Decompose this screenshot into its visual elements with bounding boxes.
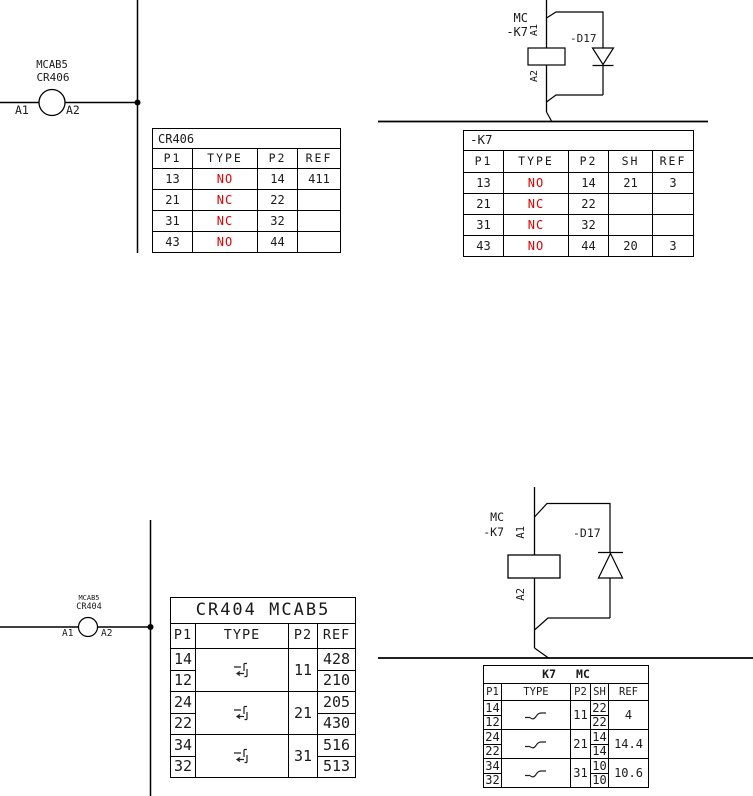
diode-tag: -D17 bbox=[570, 33, 597, 44]
cell-p2: 11 bbox=[289, 649, 318, 692]
diode-triangle-icon bbox=[599, 554, 623, 579]
table-row: 43 NO 44 20 3 bbox=[464, 236, 694, 257]
coil-tag-line2: -K7 bbox=[477, 527, 504, 539]
cell-p2: 21 bbox=[289, 692, 318, 735]
table-row: 13 NO 14 21 3 bbox=[464, 173, 694, 194]
col-header-p1: P1 bbox=[484, 684, 502, 701]
cell-sh: 14 bbox=[591, 730, 609, 745]
cell-type: NO bbox=[193, 232, 258, 253]
cell-type: NO bbox=[504, 173, 569, 194]
cell-sh bbox=[609, 215, 653, 236]
cell-ref: 513 bbox=[318, 756, 356, 778]
contact-xref-table-k7-top[interactable]: -K7 P1 TYPE P2 SH REF 13 NO 14 21 3 21 N… bbox=[463, 130, 694, 257]
cell-ref bbox=[298, 211, 341, 232]
terminal-label-a1: A1 bbox=[530, 24, 540, 36]
cell-p1: 32 bbox=[484, 773, 502, 788]
col-header-ref: REF bbox=[298, 149, 341, 169]
col-header-p2: P2 bbox=[571, 684, 591, 701]
coil-tag-line1: MCAB5 bbox=[30, 60, 74, 71]
col-header-p2: P2 bbox=[258, 149, 298, 169]
contact-xref-table-k7-bottom[interactable]: K7MC P1 TYPE P2 SH REF 14 11 22 4 12 22 … bbox=[483, 665, 649, 788]
cell-p2: 31 bbox=[289, 735, 318, 778]
col-header-ref: REF bbox=[653, 151, 694, 173]
table-row: 14 11 428 bbox=[171, 649, 356, 671]
cell-p1: 31 bbox=[153, 211, 193, 232]
table-row: 34 31 10 10.6 bbox=[484, 759, 649, 774]
cell-p2: 44 bbox=[569, 236, 609, 257]
cell-p2: 32 bbox=[569, 215, 609, 236]
bus-connector-slash bbox=[547, 112, 552, 121]
diode-triangle-icon bbox=[593, 48, 614, 65]
table-title-right: MC bbox=[576, 669, 590, 681]
col-header-ref: REF bbox=[318, 624, 356, 649]
table-row: 13 NO 14 411 bbox=[153, 169, 341, 190]
no-contact-icon bbox=[502, 730, 571, 759]
cell-p1: 43 bbox=[153, 232, 193, 253]
cell-p1: 34 bbox=[484, 759, 502, 774]
cell-type: NC bbox=[504, 215, 569, 236]
col-header-sh: SH bbox=[591, 684, 609, 701]
cell-p1: 14 bbox=[171, 649, 196, 671]
cell-sh: 20 bbox=[609, 236, 653, 257]
cell-p2: 44 bbox=[258, 232, 298, 253]
coil-rectangle bbox=[528, 48, 565, 65]
coil-rectangle bbox=[508, 555, 560, 578]
coil-circuit-cr406[interactable] bbox=[0, 0, 141, 253]
terminal-label-a1: A1 bbox=[516, 526, 527, 539]
no-contact-icon bbox=[502, 701, 571, 730]
cell-p2: 22 bbox=[569, 194, 609, 215]
contact-xref-table-cr404[interactable]: CR404 MCAB5 P1 TYPE P2 REF 14 11 428 12 … bbox=[170, 597, 356, 778]
coil-circle bbox=[39, 90, 65, 116]
cell-sh: 14 bbox=[591, 744, 609, 759]
col-header-type: TYPE bbox=[502, 684, 571, 701]
coil-tag-line1: MC bbox=[503, 12, 528, 24]
table-row: 31 NC 32 bbox=[464, 215, 694, 236]
coil-tag-line2: -K7 bbox=[498, 26, 528, 38]
table-title-left: K7 bbox=[542, 669, 556, 681]
cell-sh bbox=[609, 194, 653, 215]
col-header-p1: P1 bbox=[171, 624, 196, 649]
cell-type: NO bbox=[193, 169, 258, 190]
cell-p1: 12 bbox=[484, 715, 502, 730]
cell-ref: 14.4 bbox=[609, 730, 649, 759]
terminal-label-a1: A1 bbox=[62, 629, 73, 639]
cell-p2: 22 bbox=[258, 190, 298, 211]
coil-tag-line1: MC bbox=[482, 512, 504, 524]
cell-ref: 4 bbox=[609, 701, 649, 730]
col-header-p1: P1 bbox=[464, 151, 504, 173]
coil-circle bbox=[79, 618, 98, 637]
table-title: -K7 bbox=[464, 131, 694, 151]
col-header-type: TYPE bbox=[504, 151, 569, 173]
table-row: 43 NO 44 bbox=[153, 232, 341, 253]
cell-ref: 3 bbox=[653, 236, 694, 257]
col-header-p2: P2 bbox=[569, 151, 609, 173]
coil-circuit-cr404[interactable] bbox=[0, 520, 154, 796]
cell-p1: 43 bbox=[464, 236, 504, 257]
coil-tag-line1: MCAB5 bbox=[72, 595, 106, 602]
cell-p1: 13 bbox=[464, 173, 504, 194]
cell-p1: 22 bbox=[484, 744, 502, 759]
table-row: 34 31 516 bbox=[171, 735, 356, 757]
cell-sh: 21 bbox=[609, 173, 653, 194]
coil-circuit-k7-bottom[interactable] bbox=[378, 487, 753, 658]
table-row: 24 21 14 14.4 bbox=[484, 730, 649, 745]
diode-tag: -D17 bbox=[573, 528, 601, 540]
table-title: CR406 bbox=[153, 129, 341, 149]
cell-p1: 14 bbox=[484, 701, 502, 716]
table-row: 31 NC 32 bbox=[153, 211, 341, 232]
cell-p2: 14 bbox=[569, 173, 609, 194]
cell-sh: 22 bbox=[591, 715, 609, 730]
table-row: 21 NC 22 bbox=[464, 194, 694, 215]
table-row: 14 11 22 4 bbox=[484, 701, 649, 716]
col-header-type: TYPE bbox=[196, 624, 289, 649]
cell-p2: 21 bbox=[571, 730, 591, 759]
changeover-contact-icon bbox=[196, 692, 289, 735]
cell-ref: 430 bbox=[318, 713, 356, 735]
cell-ref: 3 bbox=[653, 173, 694, 194]
col-header-p2: P2 bbox=[289, 624, 318, 649]
col-header-sh: SH bbox=[609, 151, 653, 173]
cell-ref: 10.6 bbox=[609, 759, 649, 788]
cell-p1: 13 bbox=[153, 169, 193, 190]
changeover-contact-icon bbox=[196, 649, 289, 692]
cell-type: NC bbox=[193, 190, 258, 211]
cell-ref: 210 bbox=[318, 670, 356, 692]
contact-xref-table-cr406[interactable]: CR406 P1 TYPE P2 REF 13 NO 14 411 21 NC … bbox=[152, 128, 341, 253]
cell-sh: 10 bbox=[591, 773, 609, 788]
cell-ref: 516 bbox=[318, 735, 356, 757]
schematic-canvas[interactable]: MCAB5 CR406 A1 A2 MC -K7 A1 A2 -D17 MCAB… bbox=[0, 0, 753, 796]
diode-branch-bottom bbox=[547, 95, 604, 102]
terminal-label-a2: A2 bbox=[516, 588, 527, 601]
cell-p1: 32 bbox=[171, 756, 196, 778]
table-row: 21 NC 22 bbox=[153, 190, 341, 211]
cell-p1: 12 bbox=[171, 670, 196, 692]
cell-sh: 22 bbox=[591, 701, 609, 716]
cell-p2: 31 bbox=[571, 759, 591, 788]
cell-type: NO bbox=[504, 236, 569, 257]
junction-dot bbox=[148, 624, 154, 630]
cell-p1: 21 bbox=[153, 190, 193, 211]
cell-type: NC bbox=[504, 194, 569, 215]
cell-p1: 22 bbox=[171, 713, 196, 735]
bus-connector-slash bbox=[535, 648, 549, 658]
table-row: 24 21 205 bbox=[171, 692, 356, 714]
cell-p1: 24 bbox=[171, 692, 196, 714]
junction-dot bbox=[135, 100, 141, 106]
cell-p1: 31 bbox=[464, 215, 504, 236]
cell-p1: 24 bbox=[484, 730, 502, 745]
terminal-label-a2: A2 bbox=[530, 70, 540, 82]
cell-p2: 14 bbox=[258, 169, 298, 190]
col-header-ref: REF bbox=[609, 684, 649, 701]
cell-ref: 428 bbox=[318, 649, 356, 671]
diode-branch-bottom bbox=[535, 618, 611, 630]
col-header-type: TYPE bbox=[193, 149, 258, 169]
cell-ref: 205 bbox=[318, 692, 356, 714]
cell-type: NC bbox=[193, 211, 258, 232]
cell-ref bbox=[298, 190, 341, 211]
cell-p1: 21 bbox=[464, 194, 504, 215]
cell-p2: 32 bbox=[258, 211, 298, 232]
table-title: CR404 MCAB5 bbox=[171, 598, 356, 624]
coil-tag-line2: CR404 bbox=[70, 603, 108, 612]
table-title: K7MC bbox=[484, 666, 649, 684]
terminal-label-a1: A1 bbox=[15, 105, 29, 117]
cell-ref: 411 bbox=[298, 169, 341, 190]
terminal-label-a2: A2 bbox=[101, 629, 112, 639]
coil-circuit-k7-top[interactable] bbox=[378, 0, 708, 122]
cell-p2: 11 bbox=[571, 701, 591, 730]
cell-p1: 34 bbox=[171, 735, 196, 757]
terminal-label-a2: A2 bbox=[66, 105, 80, 117]
cell-ref bbox=[653, 194, 694, 215]
cell-sh: 10 bbox=[591, 759, 609, 774]
changeover-contact-icon bbox=[196, 735, 289, 778]
cell-ref bbox=[653, 215, 694, 236]
no-contact-icon bbox=[502, 759, 571, 788]
cell-ref bbox=[298, 232, 341, 253]
coil-tag-line2: CR406 bbox=[28, 72, 78, 83]
col-header-p1: P1 bbox=[153, 149, 193, 169]
